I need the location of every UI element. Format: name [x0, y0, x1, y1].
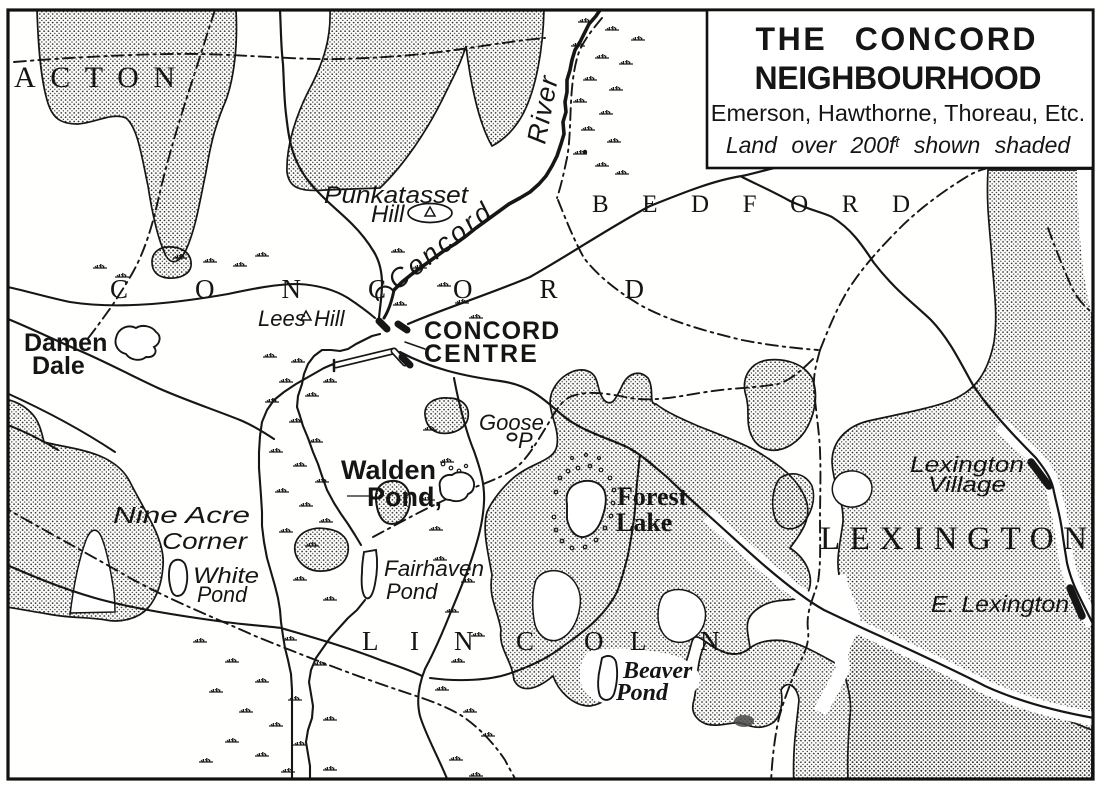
svg-text:Lake: Lake: [616, 508, 672, 537]
svg-text:Emerson, Hawthorne, Thoreau, E: Emerson, Hawthorne, Thoreau, Etc.: [711, 100, 1085, 126]
svg-text:CENTRE: CENTRE: [424, 340, 539, 368]
svg-text:Dale: Dale: [32, 352, 85, 380]
svg-text:Pond,: Pond,: [367, 482, 442, 512]
svg-text:Hill: Hill: [371, 201, 405, 228]
svg-text:Land over 200ft shown shaded: Land over 200ft shown shaded: [726, 132, 1072, 158]
svg-text:Pond: Pond: [197, 582, 248, 607]
svg-text:E. Lexington: E. Lexington: [931, 591, 1069, 617]
svg-text:Lees: Lees: [258, 306, 306, 331]
svg-text:Forest: Forest: [617, 482, 688, 511]
svg-text:LEXINGTON: LEXINGTON: [820, 521, 1087, 557]
svg-text:Pond: Pond: [615, 680, 669, 706]
svg-text:Pond: Pond: [386, 579, 438, 604]
svg-text:P.: P.: [518, 428, 536, 453]
svg-text:THE CONCORD: THE CONCORD: [756, 21, 1041, 57]
svg-text:Hill: Hill: [314, 306, 346, 331]
svg-text:Fairhaven: Fairhaven: [384, 556, 484, 581]
svg-text:Corner: Corner: [162, 528, 249, 554]
svg-text:NEIGHBOURHOOD: NEIGHBOURHOOD: [755, 60, 1042, 96]
svg-text:Nine Acre: Nine Acre: [113, 502, 250, 528]
svg-text:Walden: Walden: [341, 455, 436, 485]
svg-text:Village: Village: [928, 472, 1006, 497]
